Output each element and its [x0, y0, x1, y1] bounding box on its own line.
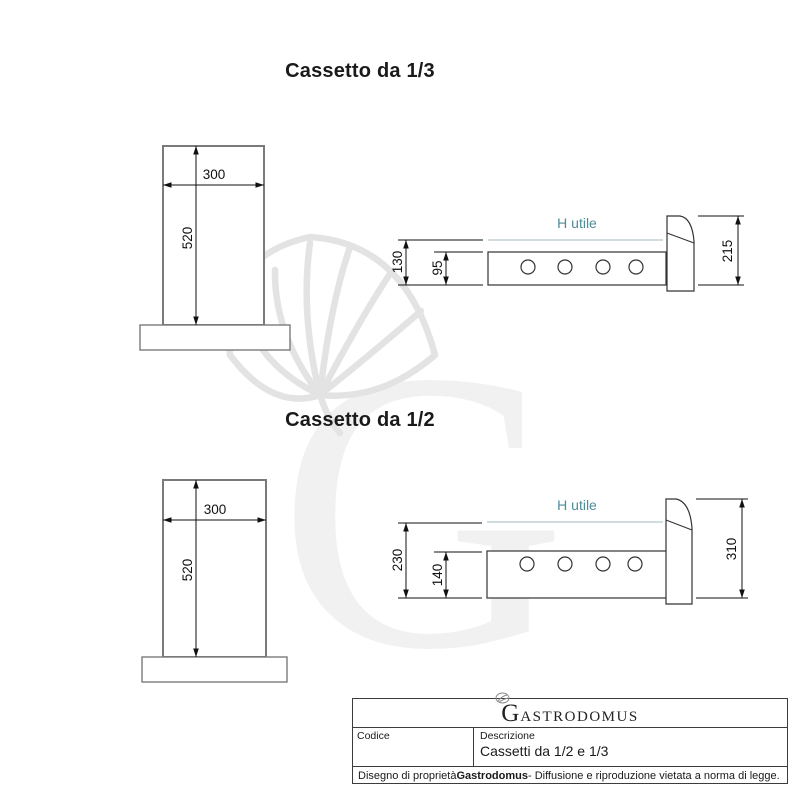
h-utile-label: H utile: [557, 497, 597, 513]
side-view-drawing-1-3: H utile 130 95 215: [390, 195, 755, 307]
drawer-base: [142, 657, 287, 682]
side-view-drawing-1-2: H utile 230 140 310: [390, 480, 755, 620]
footer-suffix: - Diffusione e riproduzione vietata a no…: [528, 770, 780, 782]
chef-hat-icon: [494, 692, 512, 706]
dimension-label-body-height: 95: [430, 260, 445, 275]
gastrodomus-logo: GASTRODOMUS: [501, 701, 638, 726]
dimension-label-front-height: 310: [724, 538, 739, 561]
dimension-label-total-height: 230: [390, 549, 405, 572]
dimension-label-width: 300: [204, 502, 227, 517]
codice-cell: Codice: [353, 728, 474, 766]
descrizione-value: Cassetti da 1/2 e 1/3: [480, 743, 781, 759]
front-view-drawing-1-3: 300 520: [130, 138, 300, 356]
dimension-label-body-height: 140: [430, 564, 445, 587]
dimension-label-total-height: 130: [390, 251, 405, 274]
drawer-base: [140, 325, 290, 350]
footer-brand: Gastrodomus: [456, 770, 528, 782]
drawer-body-profile: [487, 551, 667, 598]
front-view-drawing-1-2: 300 520: [130, 470, 300, 688]
descrizione-label: Descrizione: [480, 730, 781, 742]
front-panel-profile: [666, 499, 692, 604]
legal-footer: Disegno di proprietà Gastrodomus - Diffu…: [353, 767, 787, 784]
footer-prefix: Disegno di proprietà: [358, 770, 456, 782]
descrizione-cell: Descrizione Cassetti da 1/2 e 1/3: [474, 728, 787, 766]
front-panel-profile: [667, 216, 694, 291]
logo-text: ASTRODOMUS: [520, 709, 638, 725]
section-title-cassetto-1-2: Cassetto da 1/2: [230, 409, 490, 432]
dimension-label-height: 520: [180, 227, 195, 250]
title-block-fields-row: Codice Descrizione Cassetti da 1/2 e 1/3: [353, 728, 787, 767]
dimension-label-front-height: 215: [720, 240, 735, 263]
section-title-cassetto-1-3: Cassetto da 1/3: [230, 60, 490, 83]
h-utile-label: H utile: [557, 215, 597, 231]
title-block: GASTRODOMUS Codice Descrizione Cassetti …: [352, 698, 788, 784]
dimension-label-height: 520: [180, 559, 195, 582]
dimension-label-width: 300: [203, 167, 226, 182]
codice-label: Codice: [357, 730, 469, 742]
title-block-logo-row: GASTRODOMUS: [353, 699, 787, 728]
